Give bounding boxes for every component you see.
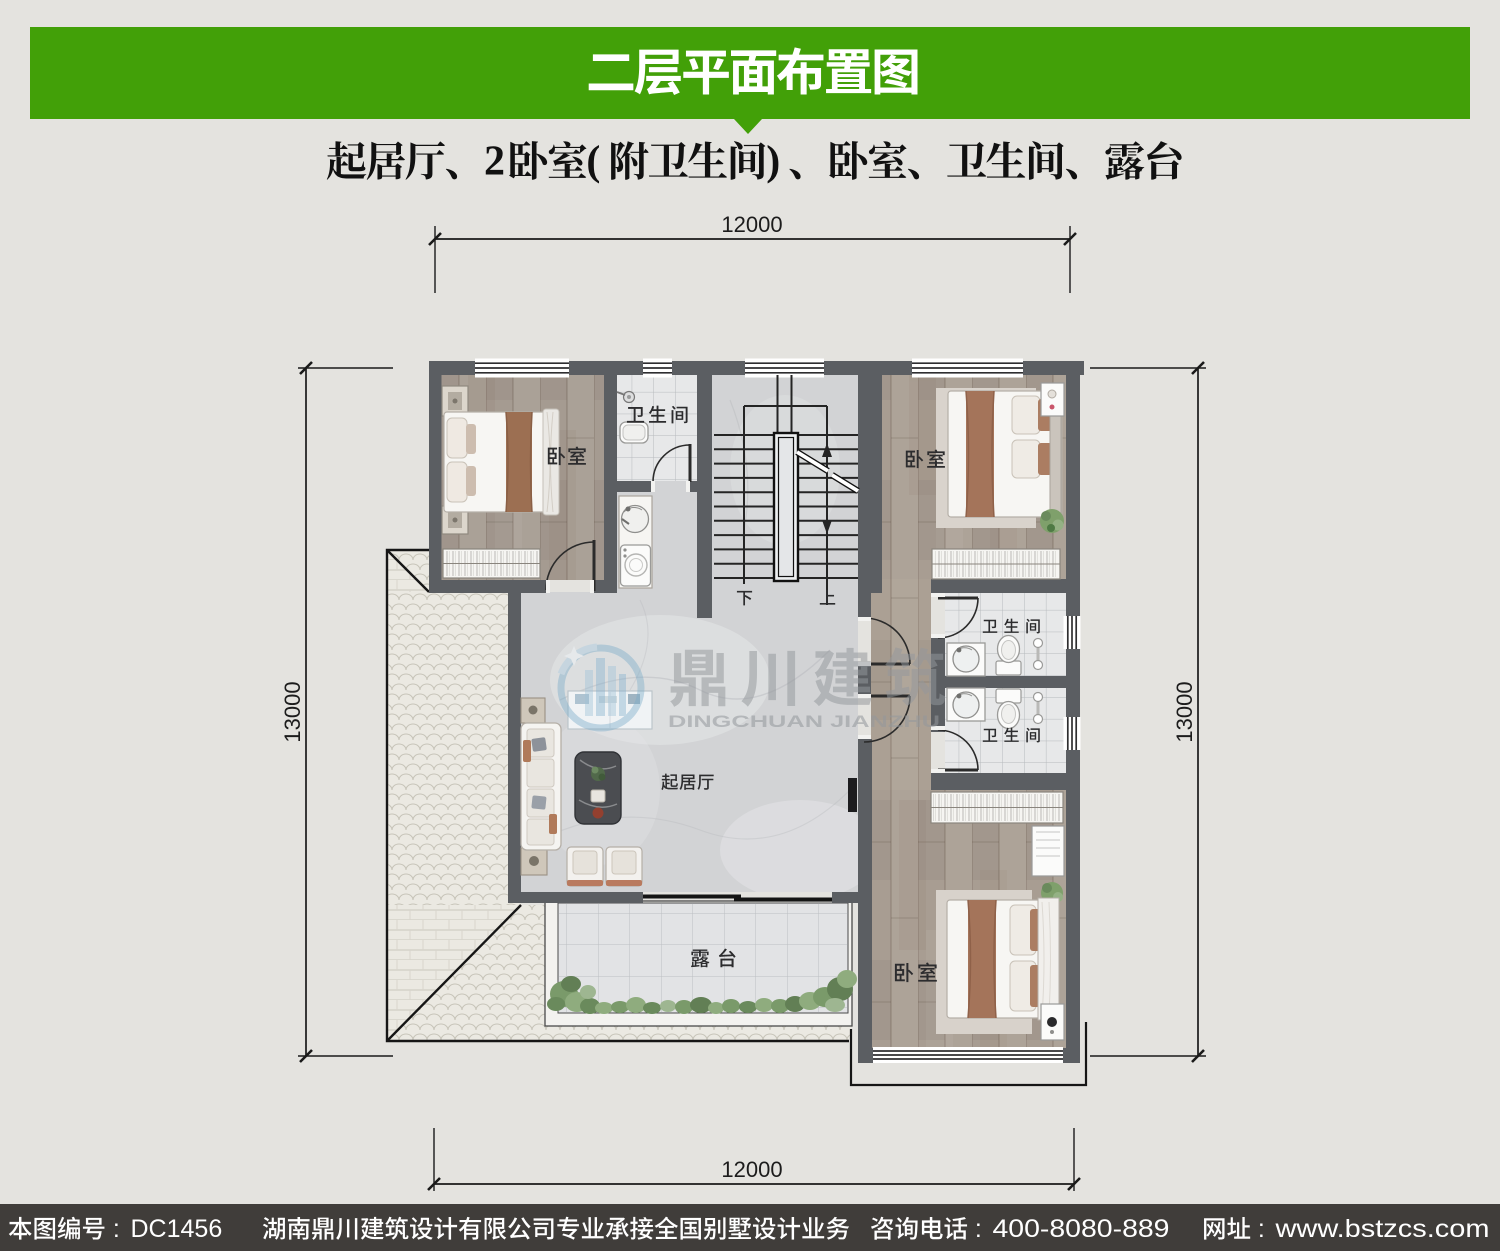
svg-text:www.bstzcs.com: www.bstzcs.com	[1274, 1215, 1489, 1243]
svg-text:DC1456: DC1456	[131, 1215, 223, 1243]
svg-text:DINGCHUAN JIANZHU: DINGCHUAN JIANZHU	[668, 712, 940, 731]
svg-text:2: 2	[484, 138, 505, 184]
svg-text:400-8080-889: 400-8080-889	[993, 1215, 1170, 1243]
svg-text:13000: 13000	[280, 681, 305, 742]
svg-text:12000: 12000	[721, 212, 782, 237]
svg-text:12000: 12000	[721, 1157, 782, 1182]
svg-text:(: (	[586, 138, 600, 184]
svg-text::: :	[975, 1215, 982, 1243]
svg-text::: :	[113, 1215, 120, 1243]
svg-text:13000: 13000	[1172, 681, 1197, 742]
svg-text::: :	[1258, 1215, 1265, 1243]
svg-text:): )	[766, 138, 780, 184]
